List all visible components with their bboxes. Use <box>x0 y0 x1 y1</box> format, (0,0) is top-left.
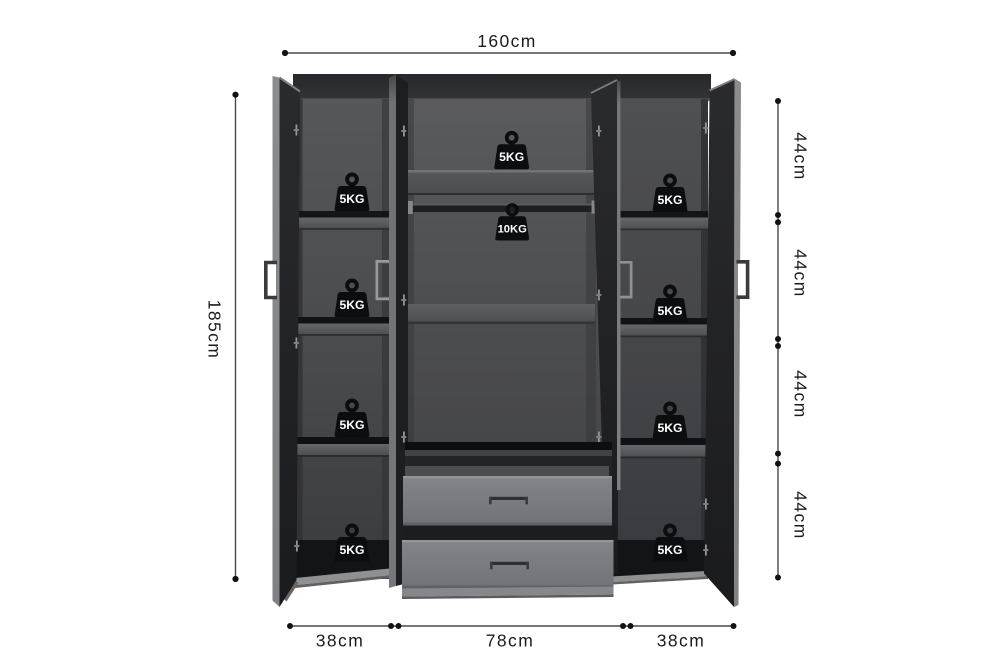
svg-text:38cm: 38cm <box>316 631 364 651</box>
svg-text:38cm: 38cm <box>657 631 705 651</box>
svg-text:160cm: 160cm <box>477 31 537 51</box>
svg-text:44cm: 44cm <box>791 370 811 418</box>
svg-text:5KG: 5KG <box>657 193 682 207</box>
svg-text:5KG: 5KG <box>339 192 364 206</box>
svg-text:44cm: 44cm <box>791 132 811 180</box>
svg-text:5KG: 5KG <box>339 543 364 557</box>
svg-text:5KG: 5KG <box>339 418 364 432</box>
svg-text:44cm: 44cm <box>791 491 811 539</box>
svg-text:185cm: 185cm <box>205 300 225 360</box>
svg-text:44cm: 44cm <box>791 249 811 297</box>
svg-text:5KG: 5KG <box>339 298 364 312</box>
svg-text:78cm: 78cm <box>486 631 534 651</box>
svg-text:5KG: 5KG <box>657 543 682 557</box>
svg-text:5KG: 5KG <box>657 304 682 318</box>
svg-text:5KG: 5KG <box>657 421 682 435</box>
svg-text:10KG: 10KG <box>498 224 528 236</box>
svg-text:5KG: 5KG <box>499 150 524 164</box>
